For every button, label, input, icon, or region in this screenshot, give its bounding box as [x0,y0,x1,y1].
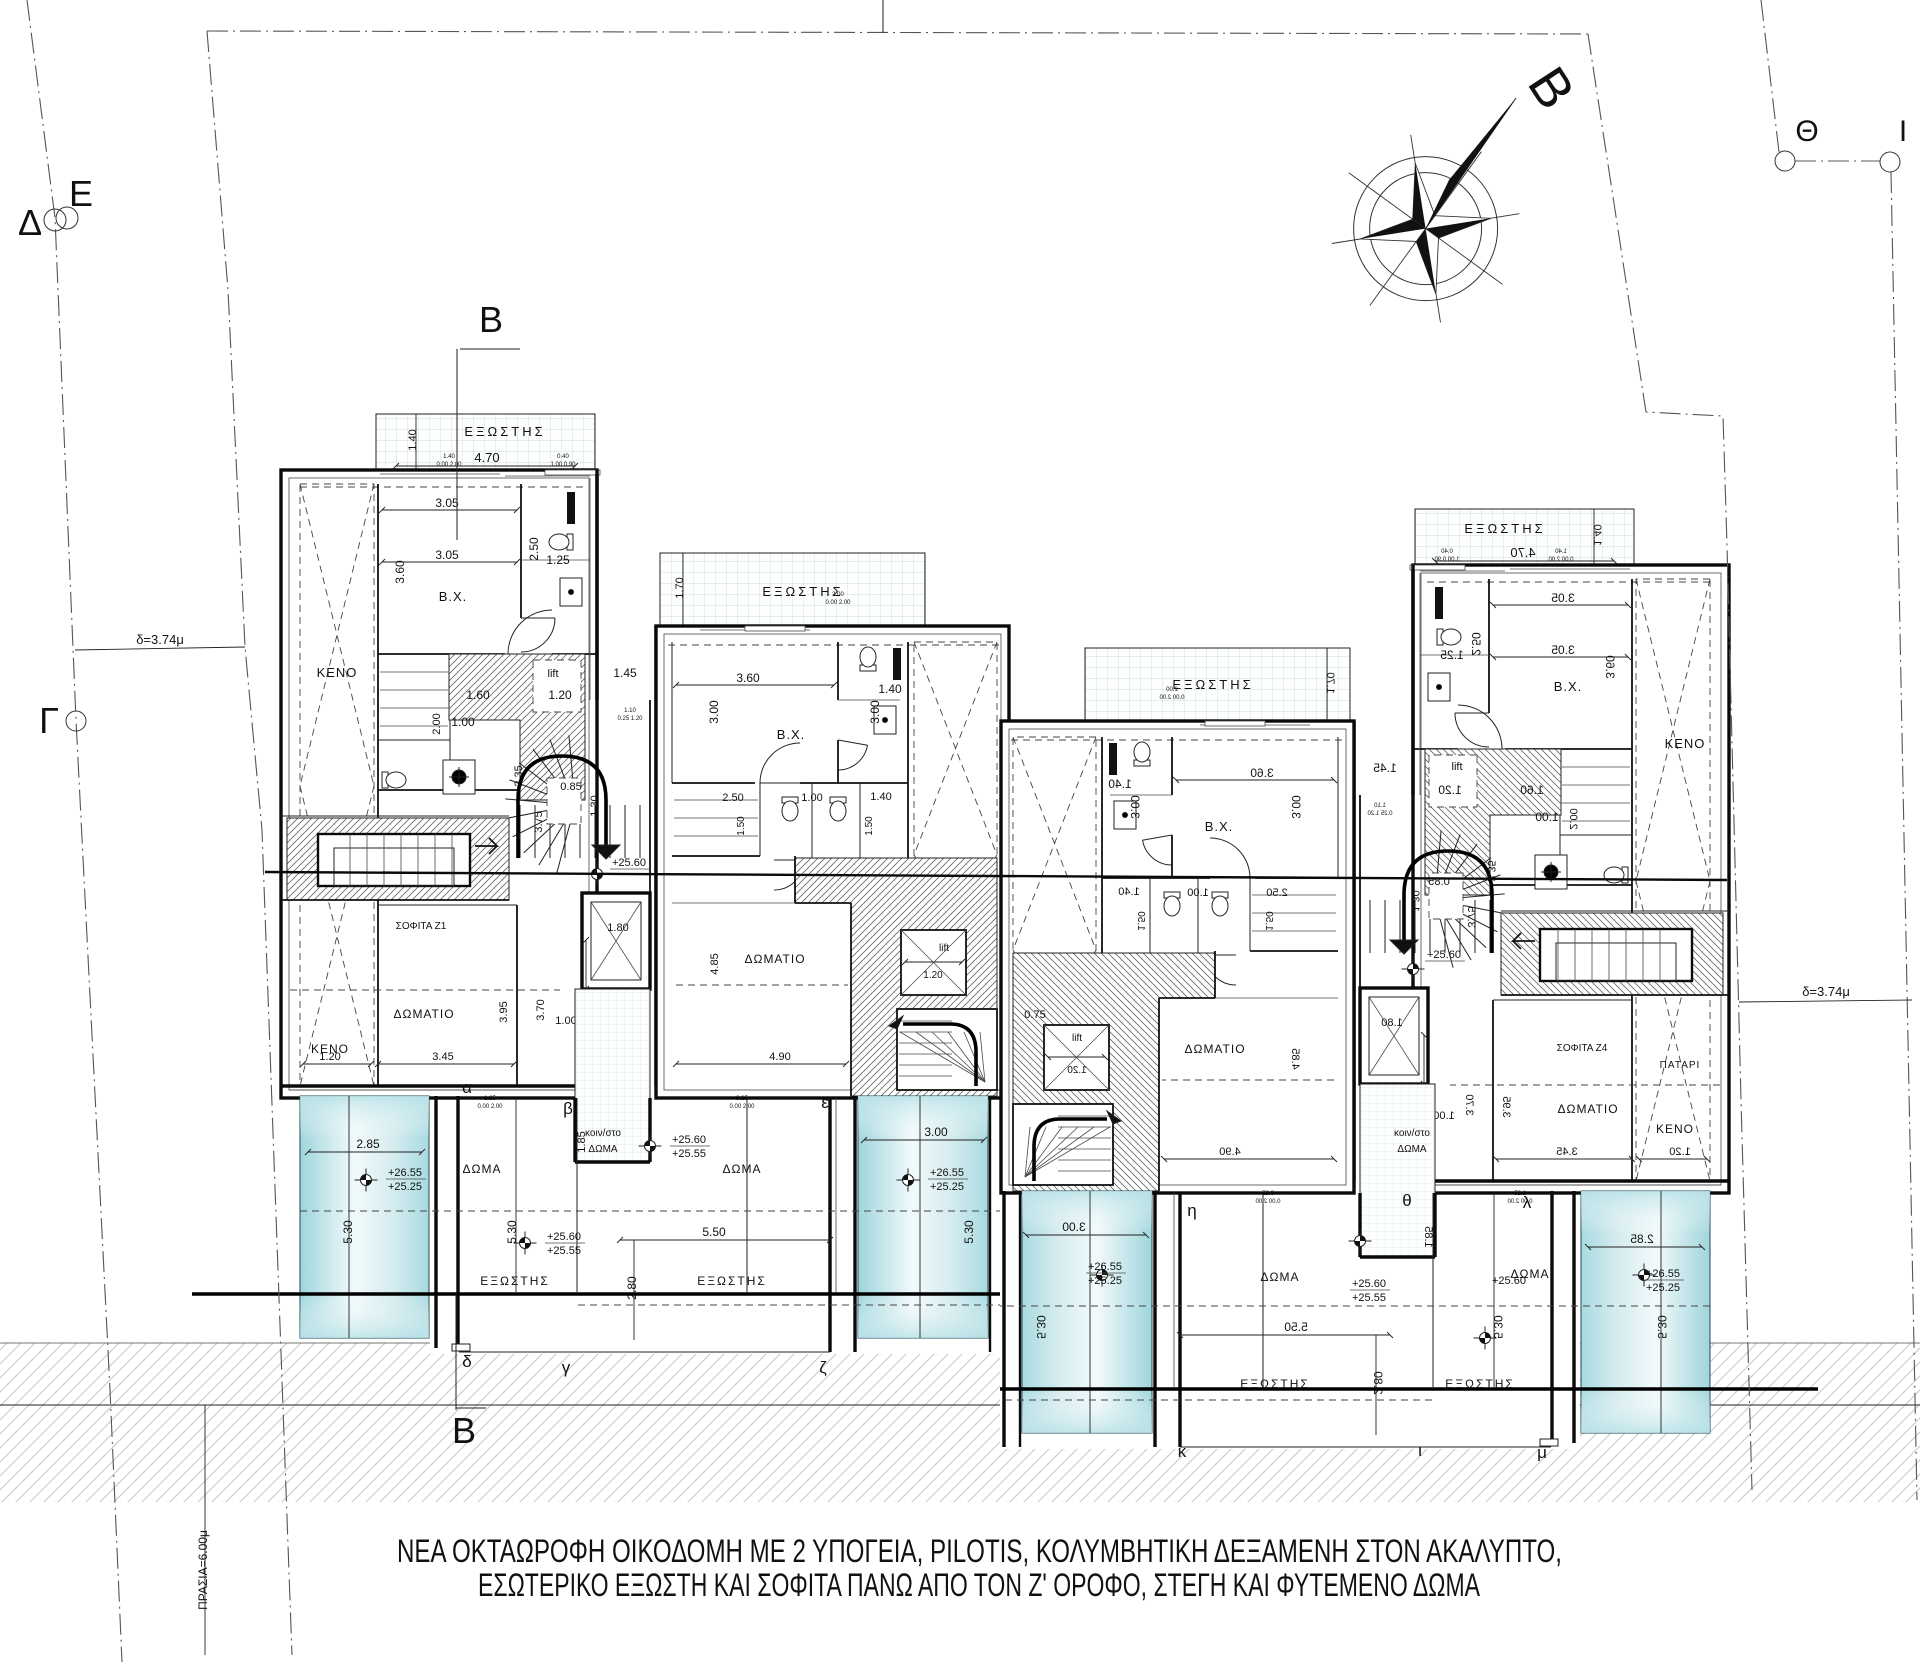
svg-text:0.00 2.00: 0.00 2.00 [436,462,462,468]
svg-text:ΚΕΝΟ: ΚΕΝΟ [311,1042,349,1056]
svg-text:1.60: 1.60 [1520,783,1544,797]
svg-text:3.75: 3.75 [533,811,545,832]
svg-text:ΔΩΜΑ: ΔΩΜΑ [1261,1270,1300,1284]
svg-text:4.85: 4.85 [709,953,721,974]
svg-text:3.75: 3.75 [1465,906,1477,927]
svg-text:3.25: 3.25 [736,1096,748,1102]
svg-text:5.30: 5.30 [962,1220,976,1244]
svg-text:2.80: 2.80 [625,1276,639,1300]
svg-text:E: E [69,173,93,214]
svg-text:κοιν/στο: κοιν/στο [585,1128,621,1139]
svg-text:+25.25: +25.25 [1646,1282,1680,1294]
svg-text:3.05: 3.05 [1551,643,1575,657]
svg-text:+25.60: +25.60 [1352,1278,1386,1290]
svg-text:B: B [452,1410,476,1451]
svg-text:1.00: 1.00 [1535,810,1559,824]
svg-text:I: I [1899,115,1907,148]
svg-text:2.50: 2.50 [722,792,743,804]
svg-text:1.00: 1.00 [801,792,822,804]
svg-text:λ: λ [1523,1193,1532,1212]
svg-text:1.00: 1.00 [555,1015,576,1027]
svg-text:3.60: 3.60 [1603,655,1617,679]
svg-text:ΝΕΑ ΟΚΤΑΩΡΟΦΗ ΟΙΚΟΔΟΜΗ ΜΕ 2 ΥΠ: ΝΕΑ ΟΚΤΑΩΡΟΦΗ ΟΙΚΟΔΟΜΗ ΜΕ 2 ΥΠΟΓΕΙΑ, PIL… [397,1533,1562,1569]
svg-text:Δ: Δ [18,202,42,243]
svg-text:ΠΑΤΑΡΙ: ΠΑΤΑΡΙ [1660,1060,1701,1071]
svg-text:1.40: 1.40 [1591,524,1603,545]
svg-text:1.70: 1.70 [1324,672,1336,693]
svg-text:4.85: 4.85 [1289,1048,1301,1069]
svg-text:1.45: 1.45 [613,666,637,680]
svg-text:4.90: 4.90 [769,1051,790,1063]
svg-text:1.50: 1.50 [1263,911,1274,931]
svg-text:ι: ι [1418,1441,1422,1460]
svg-text:ΔΩΜΑΤΙΟ: ΔΩΜΑΤΙΟ [393,1007,454,1021]
svg-text:3.05: 3.05 [435,548,459,562]
svg-text:3.45: 3.45 [432,1051,453,1063]
svg-text:5.30: 5.30 [1655,1315,1669,1339]
svg-text:5.30: 5.30 [341,1220,355,1244]
svg-text:ΔΩΜΑ: ΔΩΜΑ [1397,1144,1426,1155]
svg-text:ΔΩΜΑΤΙΟ: ΔΩΜΑΤΙΟ [1557,1102,1618,1116]
svg-text:ΕΞΩΣΤΗΣ: ΕΞΩΣΤΗΣ [1445,1377,1515,1391]
svg-text:5.30: 5.30 [505,1220,519,1244]
svg-text:KENO: KENO [317,665,358,680]
svg-text:3.60: 3.60 [1250,766,1274,780]
svg-text:2.80: 2.80 [1371,1371,1385,1395]
svg-text:2.00: 2.00 [431,713,443,734]
svg-text:1.80: 1.80 [607,922,628,934]
svg-text:1.00 0.90: 1.00 0.90 [1434,557,1460,563]
svg-text:+26.55: +26.55 [1088,1261,1122,1273]
svg-text:3.00: 3.00 [707,700,721,724]
svg-text:ΔΩΜΑ: ΔΩΜΑ [588,1144,617,1155]
svg-text:lift: lift [548,668,559,680]
svg-text:5.30: 5.30 [1491,1315,1505,1339]
svg-text:1.00 0.90: 1.00 0.90 [550,462,576,468]
svg-text:B.X.: B.X. [777,727,806,742]
svg-text:3.00: 3.00 [924,1125,948,1139]
svg-text:1.40: 1.40 [407,429,419,450]
svg-text:δ=3.74μ: δ=3.74μ [136,632,184,647]
svg-text:2.85: 2.85 [356,1137,380,1151]
svg-text:ΠΡΑΣΙΑ=6.00μ: ΠΡΑΣΙΑ=6.00μ [196,1530,210,1610]
svg-text:1.50: 1.50 [864,816,875,836]
svg-text:ΣΟΦΙΤΑ Ζ4: ΣΟΦΙΤΑ Ζ4 [1557,1043,1608,1054]
svg-text:1.40: 1.40 [1108,777,1132,791]
svg-text:3.70: 3.70 [1463,1094,1475,1115]
svg-text:2.35: 2.35 [513,765,525,786]
svg-text:1.00: 1.00 [451,715,475,729]
svg-text:+25.60: +25.60 [547,1231,581,1243]
svg-text:1.40: 1.40 [870,791,891,803]
svg-text:ΚΕΝΟ: ΚΕΝΟ [1656,1122,1694,1136]
svg-text:+25.25: +25.25 [930,1181,964,1193]
svg-text:1.00: 1.00 [1187,887,1208,899]
svg-text:κοιν/στο: κοιν/στο [1394,1128,1430,1139]
svg-text:2.85: 2.85 [1630,1232,1654,1246]
svg-text:3.95: 3.95 [498,1001,510,1022]
svg-text:1.20: 1.20 [1669,1146,1690,1158]
svg-text:1.50: 1.50 [1135,911,1146,931]
svg-text:3.60: 3.60 [393,560,407,584]
svg-text:ΕΞΩΣΤΗΣ: ΕΞΩΣΤΗΣ [1240,1377,1310,1391]
svg-text:1.20: 1.20 [923,970,943,981]
svg-text:η: η [1187,1201,1196,1220]
svg-text:Θ: Θ [1795,115,1818,148]
svg-text:α: α [462,1078,472,1097]
svg-text:1.00: 1.00 [1433,1110,1454,1122]
svg-text:ΕΞΩΣΤΗΣ: ΕΞΩΣΤΗΣ [1464,521,1545,536]
svg-text:+25.60: +25.60 [1427,949,1461,961]
svg-text:β: β [563,1099,573,1118]
svg-text:ΔΩΜΑΤΙΟ: ΔΩΜΑΤΙΟ [1184,1042,1245,1056]
svg-text:lift: lift [1452,761,1463,773]
svg-text:ΕΞΩΣΤΗΣ: ΕΞΩΣΤΗΣ [480,1274,550,1288]
svg-text:+25.60: +25.60 [672,1134,706,1146]
svg-text:4.90: 4.90 [1219,1146,1240,1158]
svg-text:1.30: 1.30 [589,795,601,816]
svg-text:1.10: 1.10 [624,708,636,714]
svg-text:5.50: 5.50 [702,1225,726,1239]
svg-text:0.00 2.00: 0.00 2.00 [1548,557,1574,563]
svg-text:3.70: 3.70 [535,999,547,1020]
svg-text:4.70: 4.70 [1510,545,1535,560]
svg-text:ΕΣΩΤΕΡΙΚΟ ΕΞΩΣΤΗ ΚΑΙ ΣΟΦΙΤΑ ΠΑ: ΕΣΩΤΕΡΙΚΟ ΕΞΩΣΤΗ ΚΑΙ ΣΟΦΙΤΑ ΠΑΝΩ ΑΠΟ ΤΟΝ… [478,1567,1480,1603]
svg-text:3.60: 3.60 [736,671,760,685]
svg-text:+26.55: +26.55 [1646,1268,1680,1280]
svg-text:3.00: 3.00 [1062,1220,1086,1234]
svg-text:4.70: 4.70 [474,450,499,465]
svg-text:B.X.: B.X. [1554,679,1583,694]
svg-text:2.50: 2.50 [1266,887,1287,899]
svg-text:1.10: 1.10 [1374,803,1386,809]
svg-text:ΣΟΦΙΤΑ Ζ1: ΣΟΦΙΤΑ Ζ1 [396,921,447,932]
svg-text:ΔΩΜΑ: ΔΩΜΑ [723,1162,762,1176]
svg-text:+26.55: +26.55 [388,1167,422,1179]
svg-text:+25.25: +25.25 [1088,1275,1122,1287]
svg-text:1.50: 1.50 [736,816,747,836]
svg-text:3.25: 3.25 [1262,1191,1274,1197]
svg-text:lift: lift [939,943,949,954]
svg-text:1.20: 1.20 [1438,783,1462,797]
svg-text:3.00: 3.00 [868,700,882,724]
svg-text:0.85: 0.85 [560,781,581,793]
svg-text:5.30: 5.30 [1034,1315,1048,1339]
svg-text:1.20: 1.20 [1067,1065,1087,1076]
svg-text:1.25: 1.25 [1440,648,1464,662]
svg-text:+25.60: +25.60 [1492,1275,1526,1287]
svg-text:2.50: 2.50 [527,537,541,561]
svg-text:ΕΞΩΣΤΗΣ: ΕΞΩΣΤΗΣ [1172,677,1253,692]
svg-text:3.45: 3.45 [1556,1146,1577,1158]
svg-text:1.85: 1.85 [1422,1226,1434,1247]
svg-text:θ: θ [1402,1191,1411,1210]
svg-text:1.40: 1.40 [443,454,455,460]
svg-text:ΕΞΩΣΤΗΣ: ΕΞΩΣΤΗΣ [762,584,843,599]
svg-text:+25.55: +25.55 [547,1245,581,1257]
svg-text:3.05: 3.05 [1551,591,1575,605]
svg-text:lift: lift [1072,1033,1082,1044]
svg-text:KENO: KENO [1665,736,1706,751]
svg-text:1.60: 1.60 [466,688,490,702]
svg-text:+25.55: +25.55 [1352,1292,1386,1304]
svg-text:1.25: 1.25 [546,553,570,567]
svg-text:γ: γ [562,1358,571,1377]
svg-text:1.40: 1.40 [1118,886,1139,898]
svg-text:δ: δ [462,1352,471,1371]
svg-text:+26.55: +26.55 [930,1167,964,1179]
svg-text:0.00 2.00: 0.00 2.00 [477,1104,503,1110]
svg-text:3.00: 3.00 [1289,795,1303,819]
svg-text:1.80: 1.80 [1381,1017,1402,1029]
svg-text:ΔΩΜΑ: ΔΩΜΑ [463,1162,502,1176]
svg-text:1.70: 1.70 [674,577,686,598]
svg-text:B.X.: B.X. [439,589,468,604]
svg-text:0.75: 0.75 [1024,1009,1045,1021]
svg-text:κ: κ [1178,1442,1187,1461]
svg-text:3.00: 3.00 [1128,795,1142,819]
svg-text:ΕΞΩΣΤΗΣ: ΕΞΩΣΤΗΣ [464,424,545,439]
svg-text:5.50: 5.50 [1284,1320,1308,1334]
svg-text:+25.55: +25.55 [672,1148,706,1160]
svg-text:0.25 1.20: 0.25 1.20 [1367,811,1393,817]
svg-text:1.30: 1.30 [1409,890,1421,911]
svg-text:1.20: 1.20 [548,688,572,702]
svg-text:0.40: 0.40 [1441,549,1453,555]
svg-text:μ: μ [1537,1443,1547,1462]
svg-text:+25.25: +25.25 [388,1181,422,1193]
svg-text:ΔΩΜΑΤΙΟ: ΔΩΜΑΤΙΟ [744,952,805,966]
svg-text:1.25: 1.25 [484,1096,496,1102]
svg-text:ζ: ζ [819,1358,827,1377]
svg-text:1.45: 1.45 [1373,761,1397,775]
svg-text:2.00: 2.00 [1567,808,1579,829]
svg-text:δ=3.74μ: δ=3.74μ [1802,984,1850,999]
svg-text:0.00 2.00: 0.00 2.00 [1255,1199,1281,1205]
svg-text:B.X.: B.X. [1205,819,1234,834]
svg-text:3.95: 3.95 [1500,1096,1512,1117]
svg-text:Γ: Γ [39,700,59,741]
svg-text:0.00 2.00: 0.00 2.00 [729,1104,755,1110]
svg-text:B: B [479,299,503,340]
svg-text:0.00 2.00: 0.00 2.00 [1159,695,1185,701]
svg-text:1.40: 1.40 [878,682,902,696]
svg-text:+25.60: +25.60 [612,857,646,869]
svg-text:2.50: 2.50 [1469,632,1483,656]
svg-text:3.05: 3.05 [435,496,459,510]
svg-text:0.00 2.00: 0.00 2.00 [825,600,851,606]
svg-text:1.40: 1.40 [1555,549,1567,555]
svg-text:0.40: 0.40 [557,454,569,460]
svg-text:ΕΞΩΣΤΗΣ: ΕΞΩΣΤΗΣ [697,1274,767,1288]
svg-text:0.25 1.20: 0.25 1.20 [617,716,643,722]
svg-text:ε: ε [821,1093,829,1112]
